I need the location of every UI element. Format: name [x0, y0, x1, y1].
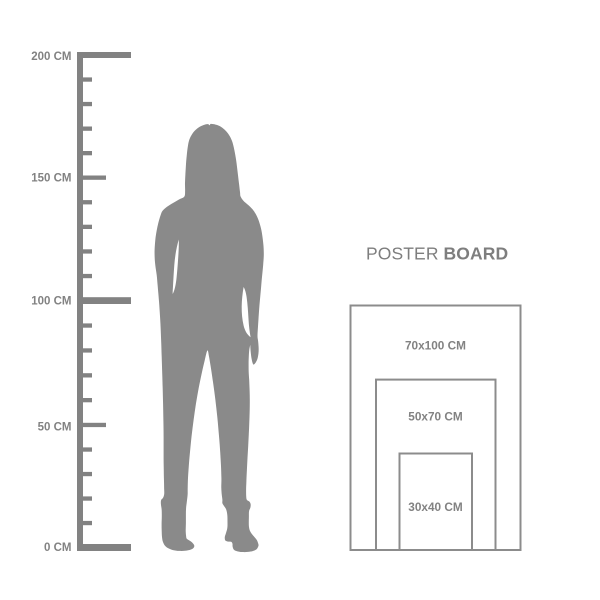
svg-text:200 CM: 200 CM: [31, 51, 71, 63]
svg-text:30x40 CM: 30x40 CM: [408, 500, 463, 514]
svg-text:50 CM: 50 CM: [38, 422, 72, 434]
svg-text:100 CM: 100 CM: [31, 296, 71, 308]
svg-text:150 CM: 150 CM: [31, 173, 71, 185]
svg-text:70x100 CM: 70x100 CM: [405, 339, 466, 353]
svg-text:50x70 CM: 50x70 CM: [408, 410, 463, 424]
svg-text:POSTER BOARD: POSTER BOARD: [366, 244, 508, 264]
svg-text:0 CM: 0 CM: [44, 542, 71, 554]
